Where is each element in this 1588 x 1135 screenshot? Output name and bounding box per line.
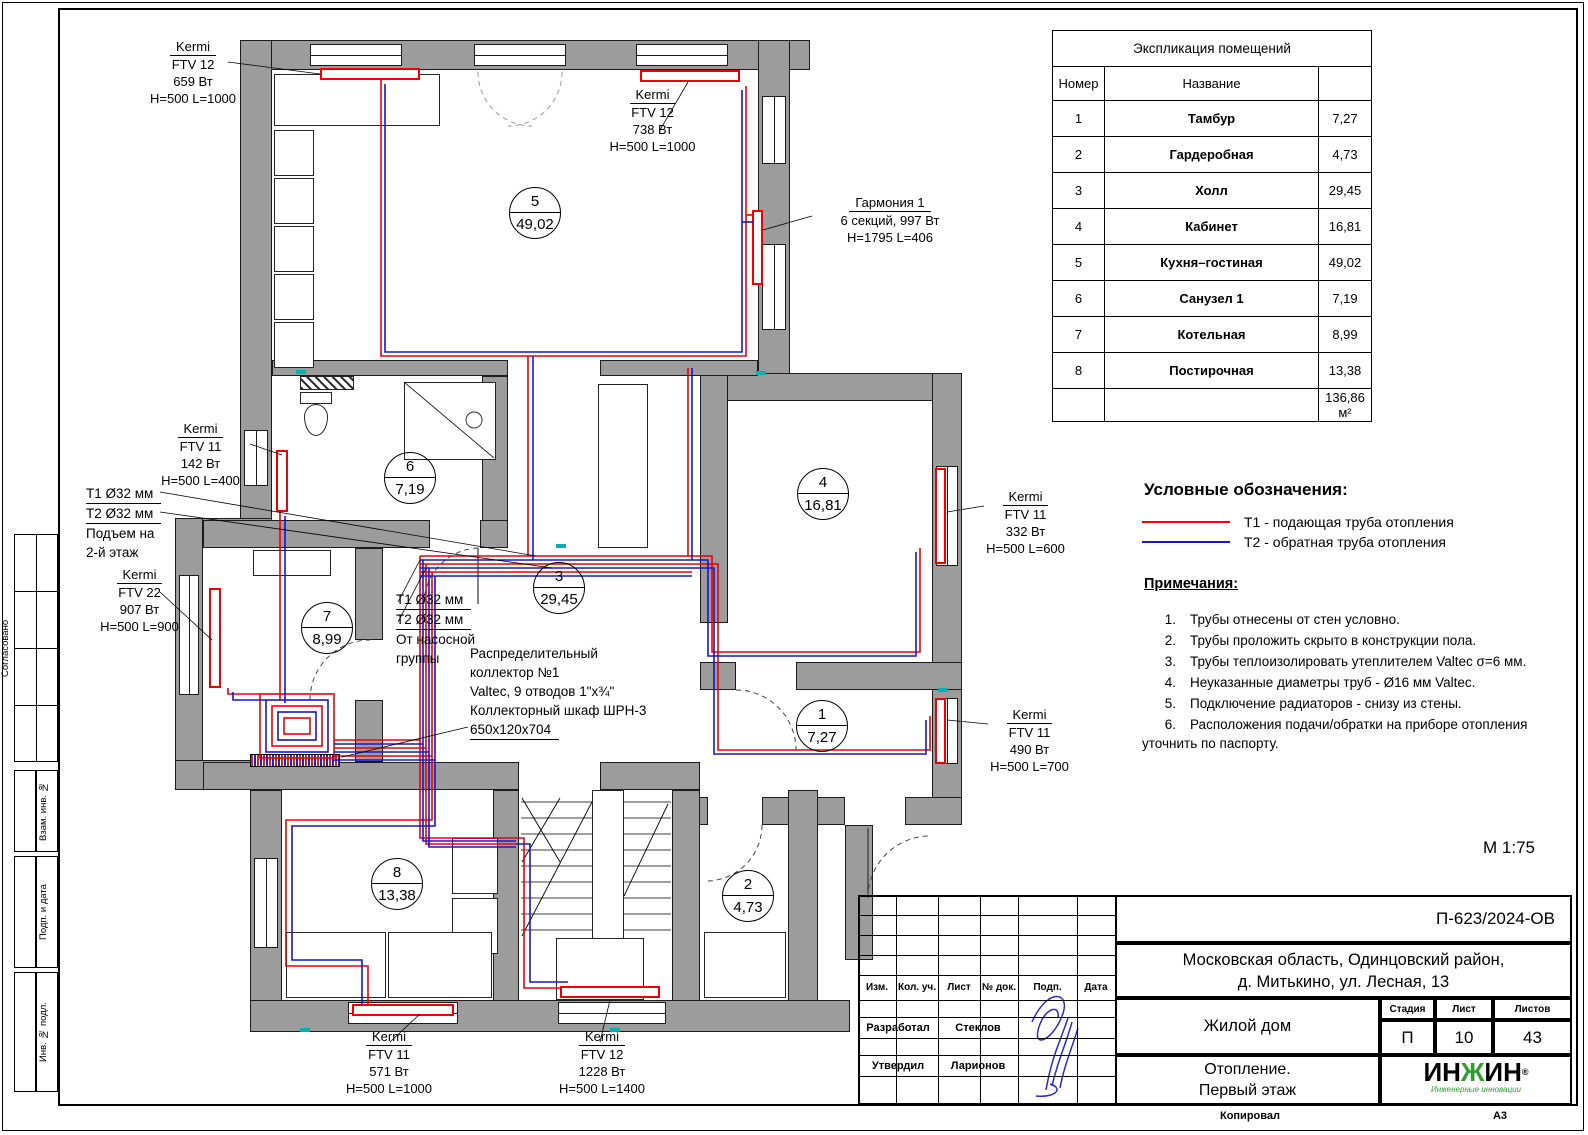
room-marker: 549,02 (509, 187, 561, 239)
tb-role-developed: Разработал (858, 1017, 938, 1038)
tb-col-koluch: Кол. уч. (896, 975, 938, 1000)
legend-item-return: Т2 - обратная труба отопления (1142, 534, 1570, 550)
tb-sheet-label: Лист (1435, 998, 1493, 1020)
tb-name-approved: Ларионов (938, 1055, 1018, 1076)
col-header-number: Номер (1053, 67, 1105, 100)
logo-leaf-glyph: Ж (1461, 1057, 1485, 1087)
tb-col-data: Дата (1077, 975, 1115, 1000)
logo-subtitle: Инженерные инновации (1380, 1085, 1572, 1094)
notes-title: Примечания: (1144, 576, 1570, 592)
tb-col-podp: Подп. (1018, 975, 1077, 1000)
room-marker: 17,27 (796, 700, 848, 752)
radiator-label: KermiFTV 11490 ВтH=500 L=700 (962, 706, 1097, 775)
tb-col-izm: Изм. (858, 975, 896, 1000)
table-row: 5Кухня–гостиная49,02 (1053, 245, 1371, 281)
room-marker: 813,38 (371, 858, 423, 910)
collector-note: Распределительныйколлектор №1Valtec, 9 о… (470, 644, 680, 740)
rooms-table: Экспликация помещений Номер Название 1Та… (1052, 30, 1372, 422)
tb-stage-label: Стадия (1380, 998, 1435, 1020)
radiator-label: KermiFTV 12738 ВтH=500 L=1000 (580, 86, 725, 155)
room-marker: 416,81 (797, 468, 849, 520)
radiator-label: KermiFTV 121228 ВтH=500 L=1400 (528, 1028, 676, 1097)
table-row: 2Гардеробная4,73 (1053, 137, 1371, 173)
tb-sheet-value: 10 (1435, 1020, 1493, 1055)
copied-label: Копировал (1140, 1110, 1360, 1122)
supply-line-swatch (1142, 521, 1230, 523)
tb-stage-value: П (1380, 1020, 1435, 1055)
room-marker: 329,45 (533, 562, 585, 614)
table-row: 7Котельная8,99 (1053, 317, 1371, 353)
tb-sheet-title: Отопление. Первый этаж (1115, 1055, 1380, 1105)
radiator-label: KermiFTV 12659 ВтH=500 L=1000 (128, 38, 258, 107)
tb-col-dok: № док. (980, 975, 1018, 1000)
drawing-sheet: Согласовано Взам. инв. № Подп. и дата Ин… (0, 0, 1588, 1135)
rooms-table-header: Номер Название (1053, 67, 1371, 101)
tb-col-list: Лист (938, 975, 980, 1000)
note-item: 1.Трубы отнесены от стен условно. (1142, 610, 1570, 629)
note-item: 3.Трубы теплоизолировать утеплителем Val… (1142, 652, 1570, 671)
note-item: 2.Трубы проложить скрыто в конструкции п… (1142, 631, 1570, 650)
scale-note: М 1:75 (1410, 838, 1535, 858)
radiator-label: KermiFTV 11142 ВтH=500 L=400 (138, 420, 263, 489)
radiator-label: KermiFTV 22907 ВтH=500 L=900 (72, 566, 207, 635)
pipe-label-riser: Т1 Ø32 ммТ2 Ø32 ммПодъем на2-й этаж (86, 484, 216, 562)
legend: Условные обозначения: Т1 - подающая труб… (1142, 480, 1570, 755)
tb-address: Московская область, Одинцовский район, д… (1115, 943, 1572, 998)
col-header-name: Название (1105, 67, 1319, 100)
format-label: А3 (1470, 1110, 1530, 1122)
note-item: 5.Подключение радиаторов - снизу из стен… (1142, 694, 1570, 713)
table-row: 8Постирочная13,38 (1053, 353, 1371, 389)
tb-doc-number: П-623/2024-ОВ (1115, 895, 1555, 943)
tb-sheets-value: 43 (1493, 1020, 1572, 1055)
company-logo: ИНЖИН® Инженерные инновации (1380, 1055, 1572, 1105)
rooms-table-title: Экспликация помещений (1053, 31, 1371, 67)
note-item: 6.Расположения подачи/обратки на приборе… (1142, 715, 1570, 753)
legend-item-supply: Т1 - подающая труба отопления (1142, 514, 1570, 530)
radiator-label: KermiFTV 11571 ВтH=500 L=1000 (315, 1028, 463, 1097)
tb-name-developed: Стеклов (938, 1017, 1018, 1038)
radiator-label: KermiFTV 11332 ВтH=500 L=600 (958, 488, 1093, 557)
tb-role-approved: Утвердил (858, 1055, 938, 1076)
note-item: 4.Неуказанные диаметры труб - Ø16 мм Val… (1142, 673, 1570, 692)
room-marker: 78,99 (301, 602, 353, 654)
room-marker: 67,19 (384, 452, 436, 504)
table-row: 6Санузел 17,19 (1053, 281, 1371, 317)
tb-object: Жилой дом (1115, 998, 1380, 1055)
radiator-label: Гармония 16 секций, 997 ВтH=1795 L=406 (806, 194, 974, 246)
table-total-row: 136,86 м² (1053, 389, 1371, 421)
room-marker: 24,73 (722, 870, 774, 922)
col-header-area (1319, 67, 1371, 100)
table-row: 1Тамбур7,27 (1053, 101, 1371, 137)
return-line-swatch (1142, 541, 1230, 543)
table-row: 3Холл29,45 (1053, 173, 1371, 209)
tb-sheets-label: Листов (1493, 998, 1572, 1020)
table-row: 4Кабинет16,81 (1053, 209, 1371, 245)
legend-title: Условные обозначения: (1144, 480, 1570, 500)
